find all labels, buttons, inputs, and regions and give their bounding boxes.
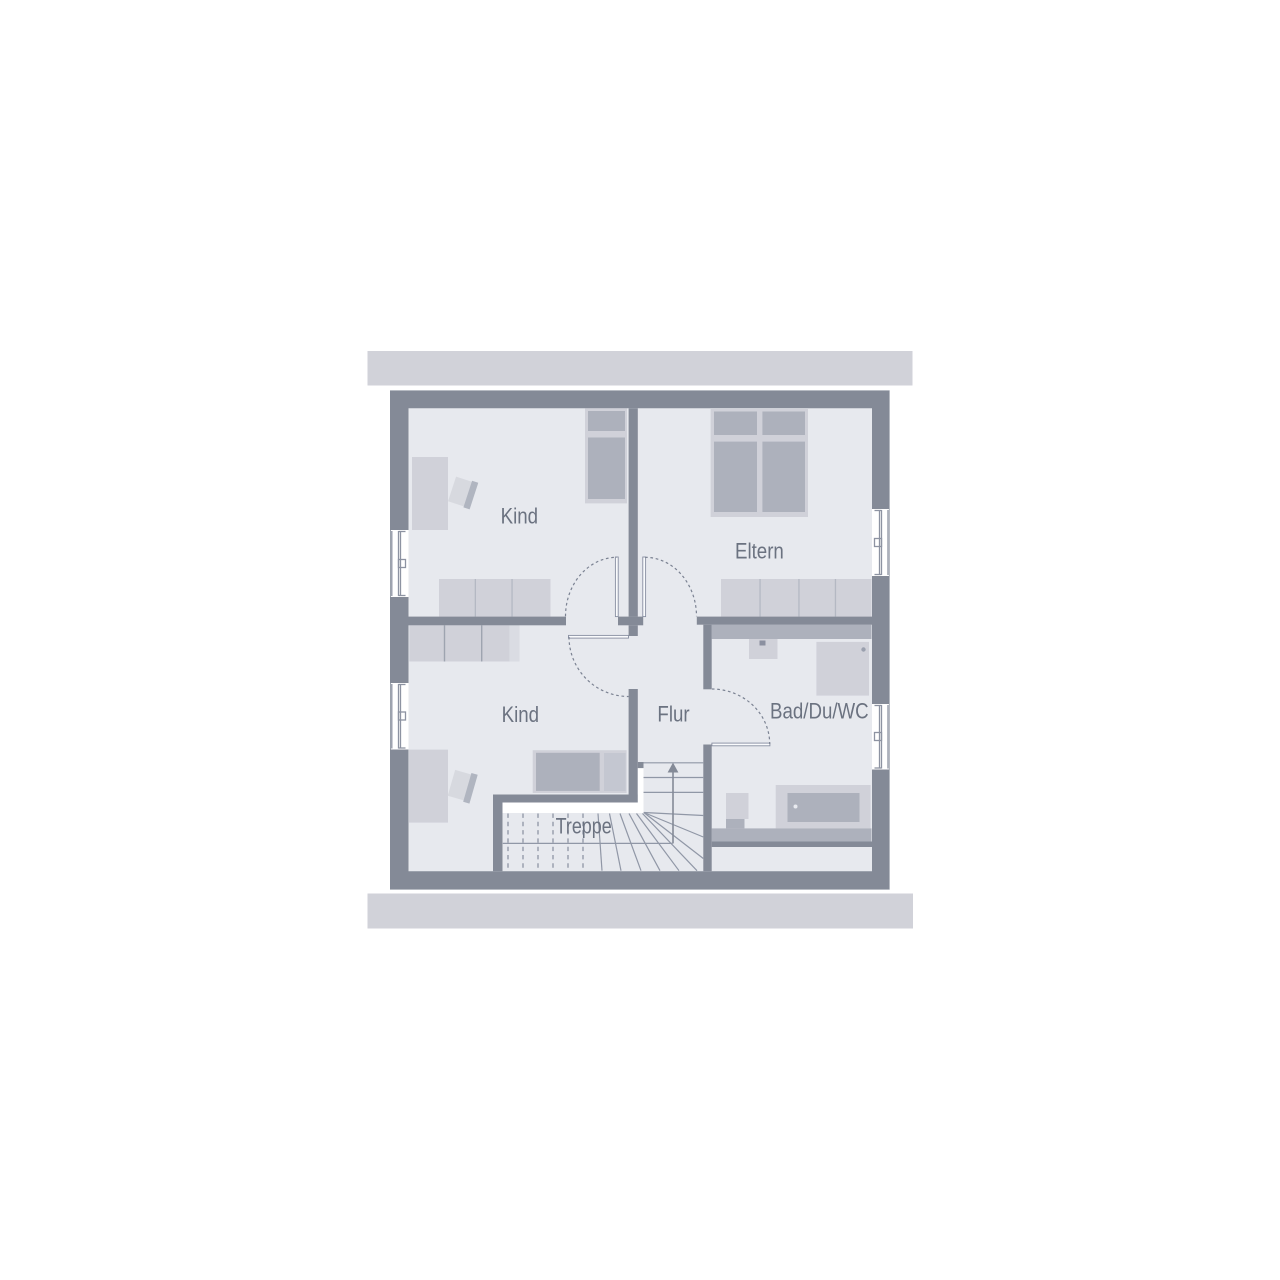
svg-text:Eltern: Eltern bbox=[735, 540, 784, 564]
svg-text:Kind: Kind bbox=[502, 704, 539, 728]
svg-text:Kind: Kind bbox=[501, 505, 538, 529]
svg-text:Flur: Flur bbox=[657, 703, 689, 727]
svg-text:Treppe: Treppe bbox=[556, 815, 612, 839]
svg-text:Bad/Du/WC: Bad/Du/WC bbox=[770, 700, 869, 724]
